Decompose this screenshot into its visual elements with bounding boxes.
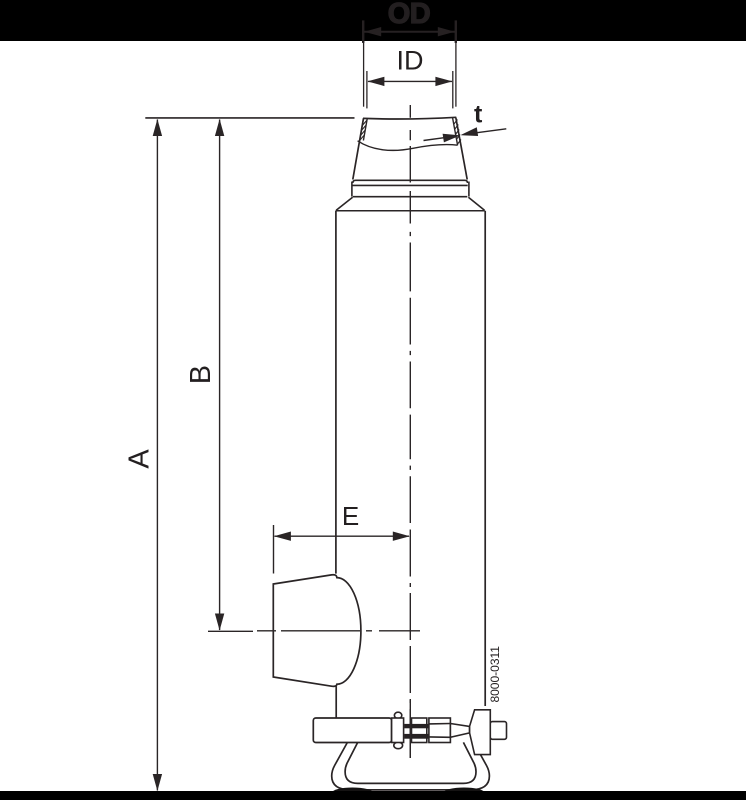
svg-text:8000-0311: 8000-0311	[488, 646, 502, 703]
svg-text:OD: OD	[388, 0, 431, 30]
svg-text:A: A	[123, 449, 155, 469]
svg-text:B: B	[185, 365, 217, 384]
svg-text:ID: ID	[397, 46, 424, 76]
svg-text:t: t	[474, 101, 483, 129]
svg-text:E: E	[342, 501, 359, 531]
